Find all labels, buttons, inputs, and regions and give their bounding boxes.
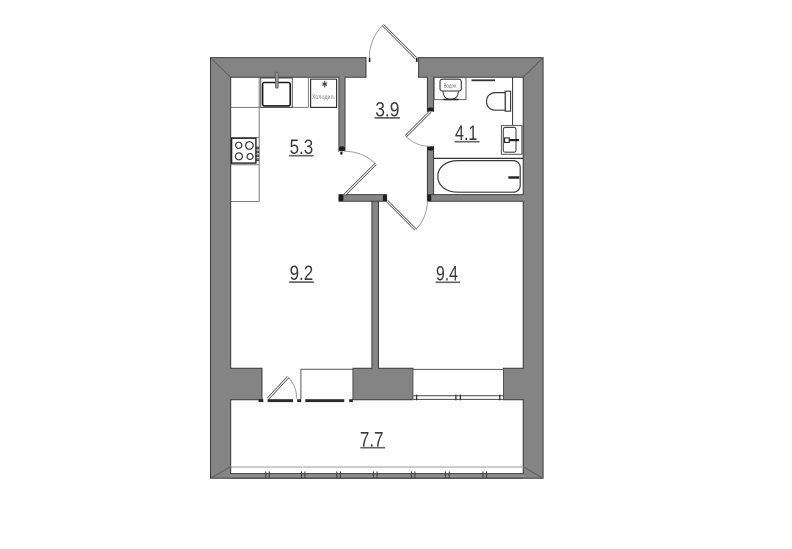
svg-text:Водон.: Водон. (444, 83, 458, 89)
svg-text:Холодил.: Холодил. (312, 94, 335, 101)
